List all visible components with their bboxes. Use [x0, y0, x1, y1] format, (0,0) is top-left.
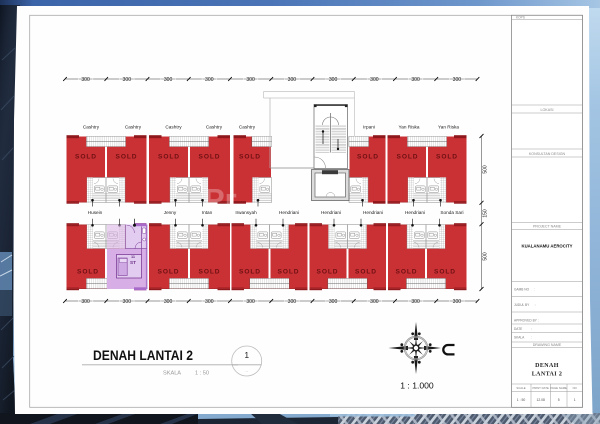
svg-text:APPROVED BY :: APPROVED BY : — [514, 319, 539, 323]
svg-text:Hendriani: Hendriani — [279, 210, 299, 215]
svg-text:150: 150 — [483, 209, 489, 218]
svg-text:Jenny: Jenny — [164, 210, 177, 215]
svg-text:300: 300 — [246, 299, 255, 305]
svg-text:SKALA: SKALA — [163, 371, 181, 377]
svg-text:300: 300 — [329, 77, 338, 83]
svg-text:PRINT DATE: PRINT DATE — [533, 386, 550, 390]
svg-text:1: 1 — [574, 398, 576, 402]
svg-text:300: 300 — [453, 299, 462, 305]
svg-text:SOLD: SOLD — [116, 153, 138, 160]
svg-text:SCALE: SCALE — [516, 386, 525, 390]
svg-text:300: 300 — [411, 299, 420, 305]
svg-text:1 : 50: 1 : 50 — [517, 398, 526, 402]
svg-text:KONSULTAN DESIGN: KONSULTAN DESIGN — [529, 152, 566, 156]
svg-text:300: 300 — [288, 77, 297, 83]
svg-text:SOLD: SOLD — [357, 153, 379, 160]
svg-text:1: 1 — [244, 350, 249, 360]
svg-text:DATE :: DATE : — [514, 327, 532, 331]
svg-text:Hendriani: Hendriani — [363, 210, 383, 215]
svg-text:Cashtry: Cashtry — [239, 124, 256, 129]
svg-text:SOLD: SOLD — [158, 153, 180, 160]
svg-text:300: 300 — [205, 77, 214, 83]
svg-text:SOLD: SOLD — [317, 269, 339, 276]
svg-text:DENAH LANTAI 2: DENAH LANTAI 2 — [93, 347, 193, 363]
svg-text:KUALANAMU AEROCITY: KUALANAMU AEROCITY — [522, 244, 573, 249]
svg-text:SOLD: SOLD — [434, 269, 456, 276]
svg-text:SOLD: SOLD — [75, 153, 97, 160]
svg-text:Irpani: Irpani — [363, 124, 375, 129]
svg-text:500: 500 — [483, 252, 489, 261]
svg-text:Yan Riska: Yan Riska — [438, 124, 459, 129]
svg-text:300: 300 — [453, 77, 462, 83]
svg-text:300: 300 — [205, 299, 214, 305]
svg-text:300: 300 — [370, 299, 379, 305]
svg-text:Irwansyah: Irwansyah — [235, 210, 257, 215]
svg-text:SOLD: SOLD — [77, 269, 99, 276]
svg-text:ST: ST — [130, 260, 136, 265]
svg-text:5: 5 — [558, 398, 560, 402]
svg-text:300: 300 — [123, 77, 132, 83]
svg-text:SOLD: SOLD — [239, 153, 261, 160]
svg-text:SOLD: SOLD — [397, 153, 419, 160]
svg-text:LANTAI 2: LANTAI 2 — [532, 372, 563, 378]
svg-text:12.08: 12.08 — [536, 398, 545, 402]
svg-text:SOLD: SOLD — [199, 269, 221, 276]
svg-text:SOLD: SOLD — [158, 269, 180, 276]
svg-text:Husein: Husein — [88, 210, 103, 215]
svg-text:Cashtry: Cashtry — [125, 124, 142, 129]
svg-text:300: 300 — [164, 299, 173, 305]
svg-text:1 : 50: 1 : 50 — [195, 371, 209, 377]
svg-text:LOKASI: LOKASI — [541, 108, 554, 112]
svg-text:300: 300 — [164, 77, 173, 83]
svg-text:GAMB NO :: GAMB NO : — [514, 288, 535, 292]
svg-text:DRAWING NAME: DRAWING NAME — [533, 343, 562, 347]
svg-text:1 : 1.000: 1 : 1.000 — [400, 381, 434, 391]
svg-text:300: 300 — [411, 77, 420, 83]
svg-text:PROJECT NAME: PROJECT NAME — [533, 225, 562, 229]
svg-text:300: 300 — [81, 77, 90, 83]
svg-text:300: 300 — [246, 77, 255, 83]
svg-text:PAGE NAME: PAGE NAME — [550, 386, 567, 390]
svg-text:SOLD: SOLD — [239, 269, 261, 276]
svg-text:Hendriani: Hendriani — [321, 210, 341, 215]
svg-text:300: 300 — [288, 299, 297, 305]
svg-text:Cashtry: Cashtry — [206, 124, 223, 129]
svg-text:SOLD: SOLD — [355, 269, 377, 276]
svg-text:300: 300 — [329, 299, 338, 305]
svg-text:Pr: Pr — [204, 182, 237, 217]
svg-text:Yan Riska: Yan Riska — [398, 124, 419, 129]
svg-text:300: 300 — [370, 77, 379, 83]
svg-text:JUDUL BY :: JUDUL BY : — [514, 303, 536, 307]
svg-text:KOPS: KOPS — [516, 16, 525, 20]
svg-text:Cashtry: Cashtry — [165, 124, 182, 129]
svg-text:SOLD: SOLD — [436, 153, 458, 160]
svg-text:300: 300 — [81, 299, 90, 305]
svg-text:Cashtry: Cashtry — [83, 124, 100, 129]
svg-text:SKALA :: SKALA : — [514, 336, 532, 340]
svg-text:300: 300 — [123, 299, 132, 305]
svg-text:500: 500 — [483, 165, 489, 174]
svg-text:Sonda Sari: Sonda Sari — [440, 210, 463, 215]
svg-text:SOLD: SOLD — [396, 269, 418, 276]
svg-text:SOLD: SOLD — [199, 153, 221, 160]
svg-text:Hendriani: Hendriani — [405, 210, 425, 215]
svg-text:SOLD: SOLD — [278, 269, 300, 276]
svg-text:DENAH: DENAH — [535, 363, 559, 369]
